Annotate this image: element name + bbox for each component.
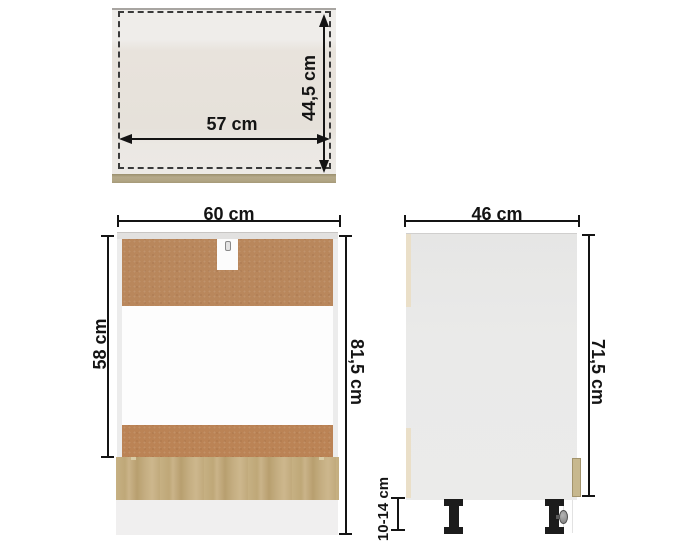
front-carcass-top-edge <box>117 232 338 239</box>
leg-height-label: 10-14 cm <box>375 468 393 550</box>
top-view-depth-label: 44,5 cm <box>299 33 319 143</box>
front-plinth-band <box>116 500 338 535</box>
leg-height-tick-bottom <box>391 529 405 531</box>
front-hanging-slot <box>225 241 231 251</box>
top-width-arrowhead-left <box>119 134 132 144</box>
top-depth-arrow-line <box>323 23 325 164</box>
top-depth-arrowhead-up <box>319 14 329 27</box>
front-opening-height-label: 58 cm <box>90 298 110 390</box>
side-left-leg-foot <box>444 527 463 534</box>
front-total-tick-top <box>339 235 352 237</box>
leg-height-tick-top <box>391 497 405 499</box>
front-total-height-label: 81,5 cm <box>347 321 367 423</box>
top-view-oak-front-edge <box>112 174 336 183</box>
front-width-tick-left <box>117 215 119 227</box>
side-right-leg-foot <box>545 527 564 534</box>
front-oak-drawer-front <box>116 457 339 500</box>
side-left-leg-stem <box>449 506 459 527</box>
front-back-panel-lower <box>122 425 333 457</box>
side-depth-dim-line <box>405 220 579 222</box>
side-right-leg-cap <box>545 499 564 506</box>
front-opening-tick-top <box>101 235 114 237</box>
side-depth-tick-right <box>578 215 580 227</box>
front-total-tick-bottom <box>339 533 352 535</box>
side-height-tick-bottom <box>582 495 595 497</box>
side-body-height-label: 71,5 cm <box>588 321 608 423</box>
front-open-compartment <box>122 306 333 425</box>
top-depth-arrowhead-down <box>319 160 329 173</box>
top-width-arrow-line <box>128 138 322 140</box>
leg-height-dim-line <box>397 498 399 531</box>
side-front-edge-lower <box>406 428 411 498</box>
side-left-leg-cap <box>444 499 463 506</box>
top-view-width-label: 57 cm <box>180 114 284 134</box>
leg-adjuster-wheel <box>559 510 568 524</box>
front-drawer-clip-right <box>319 457 324 460</box>
front-width-tick-right <box>339 215 341 227</box>
side-front-edge-upper <box>406 234 411 307</box>
front-drawer-clip-left <box>131 457 136 460</box>
cabinet-dimension-diagram: 57 cm 44,5 cm 60 cm 58 cm 81,5 cm 46 cm <box>0 0 700 550</box>
side-oak-back-strip <box>572 458 581 497</box>
side-depth-tick-left <box>404 215 406 227</box>
side-panel-body <box>406 233 577 500</box>
front-width-dim-line <box>118 220 340 222</box>
front-opening-tick-bottom <box>101 456 114 458</box>
side-height-tick-top <box>582 234 595 236</box>
